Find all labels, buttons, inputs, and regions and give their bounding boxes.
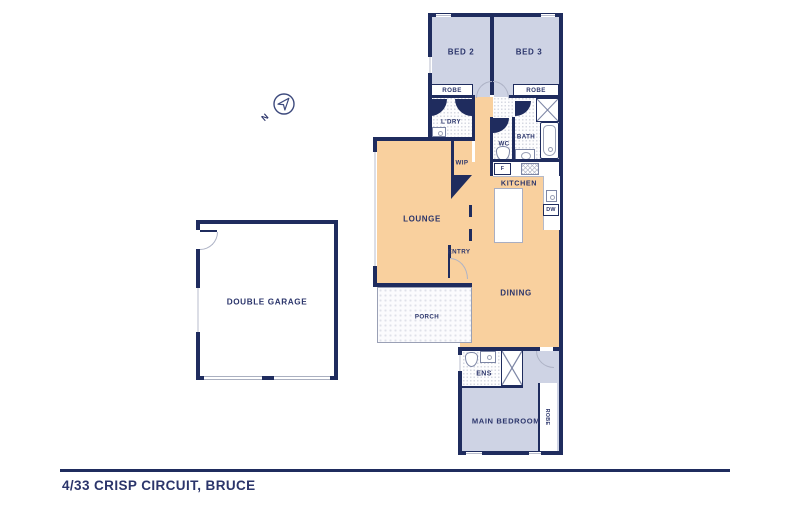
garage-door-arc xyxy=(200,232,218,250)
wip-label: WIP xyxy=(456,160,469,167)
bed3-label: BED 3 xyxy=(516,48,543,57)
wall-dash-2 xyxy=(469,229,472,241)
window-bed2-left xyxy=(428,57,432,73)
window-mainbed-bottom-2 xyxy=(529,452,541,455)
garage-wall-top xyxy=(196,220,338,224)
entry-label: ENTRY xyxy=(448,249,471,256)
wall-laundry-hall xyxy=(472,97,475,137)
bathtub xyxy=(540,122,559,159)
compass-n-label: N xyxy=(259,111,271,123)
wall-dining-bottom xyxy=(458,347,540,351)
kitchen-island xyxy=(494,188,523,243)
address-text: 4/33 CRISP CIRCUIT, BRUCE xyxy=(62,478,256,493)
main-bedroom-label: MAIN BEDROOM xyxy=(472,417,540,426)
wall-wip-left xyxy=(451,141,454,175)
wall-dash-1 xyxy=(469,205,472,217)
window-bed3-top xyxy=(541,14,555,17)
robe-bed2-label: ROBE xyxy=(442,87,461,94)
robe-bed3-label: ROBE xyxy=(526,87,545,94)
dining-label: DINING xyxy=(500,289,532,298)
dishwasher: DW xyxy=(543,204,559,216)
bath-shower xyxy=(536,98,559,122)
cooktop xyxy=(546,190,557,202)
bath-label: BATH xyxy=(517,134,535,141)
kitchen-sink xyxy=(521,163,539,175)
garage-wall-bottom-stub-r xyxy=(330,376,338,380)
dishwasher-label: DW xyxy=(546,207,555,213)
wall-under-robe-left xyxy=(428,95,475,98)
floorplan-page: { "title": { "address": "4/33 CRISP CIRC… xyxy=(0,0,790,527)
window-mainbed-bottom-1 xyxy=(466,452,482,455)
garage-window-left xyxy=(196,288,200,332)
compass-icon xyxy=(271,91,297,117)
ens-shower xyxy=(501,350,523,386)
ens-vanity xyxy=(480,351,496,363)
kitchen-counter-right xyxy=(543,176,560,230)
garage-wall-bottom-stub-m xyxy=(262,376,274,380)
floor-plan: ROBE ROBE F DW xyxy=(0,0,790,527)
window-ens-left xyxy=(458,355,462,371)
bed2-label: BED 2 xyxy=(448,48,475,57)
wall-bed-left xyxy=(428,17,432,138)
ensuite-label: ENS xyxy=(476,371,492,378)
window-lounge-left xyxy=(373,152,377,266)
window-bed2-top xyxy=(436,14,451,17)
garage-wall-bottom-stub-l xyxy=(196,376,204,380)
compass xyxy=(271,91,297,117)
laundry-label: L'DRY xyxy=(441,119,461,126)
garage-door-2 xyxy=(274,376,330,380)
wall-right-outer xyxy=(559,13,563,455)
garage-wall-right xyxy=(334,220,338,380)
wall-lounge-top xyxy=(373,137,475,141)
garage-door-1 xyxy=(204,376,262,380)
porch-label: PORCH xyxy=(415,314,439,321)
fridge-label: F xyxy=(501,166,505,172)
fridge: F xyxy=(494,163,511,175)
wc-label: WC xyxy=(498,141,509,148)
double-garage-label: DOUBLE GARAGE xyxy=(227,298,308,307)
washing-machine xyxy=(432,127,446,137)
footer-divider xyxy=(60,469,730,472)
kitchen-label: KITCHEN xyxy=(501,179,537,188)
lounge-label: LOUNGE xyxy=(403,215,441,224)
robe-main-label: ROBE xyxy=(544,409,550,426)
